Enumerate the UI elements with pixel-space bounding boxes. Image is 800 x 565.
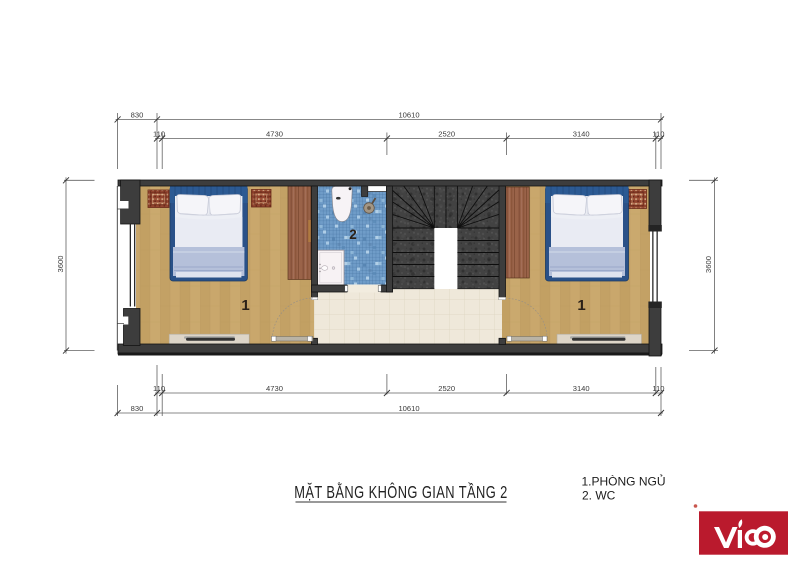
svg-text:110: 110 xyxy=(652,384,664,393)
svg-text:1.PHÒNG NGỦ: 1.PHÒNG NGỦ xyxy=(582,474,666,489)
svg-text:830: 830 xyxy=(131,404,144,413)
svg-text:3140: 3140 xyxy=(573,130,590,139)
svg-text:2: 2 xyxy=(349,227,357,242)
svg-text:2520: 2520 xyxy=(438,130,455,139)
svg-text:3600: 3600 xyxy=(56,256,65,273)
svg-text:110: 110 xyxy=(652,130,664,139)
svg-text:10610: 10610 xyxy=(398,404,419,413)
svg-text:3140: 3140 xyxy=(573,384,590,393)
svg-text:1: 1 xyxy=(577,297,585,314)
svg-text:2520: 2520 xyxy=(438,384,455,393)
svg-text:4730: 4730 xyxy=(266,384,283,393)
svg-text:110: 110 xyxy=(153,384,165,393)
svg-text:3600: 3600 xyxy=(704,256,713,273)
svg-text:110: 110 xyxy=(153,130,165,139)
svg-text:MẶT BẰNG KHÔNG GIAN TẦNG 2: MẶT BẰNG KHÔNG GIAN TẦNG 2 xyxy=(294,481,508,503)
svg-text:10610: 10610 xyxy=(398,110,419,119)
svg-text:2. WC: 2. WC xyxy=(582,489,616,503)
svg-text:830: 830 xyxy=(131,110,144,119)
svg-text:4730: 4730 xyxy=(266,130,283,139)
svg-text:1: 1 xyxy=(241,297,249,314)
